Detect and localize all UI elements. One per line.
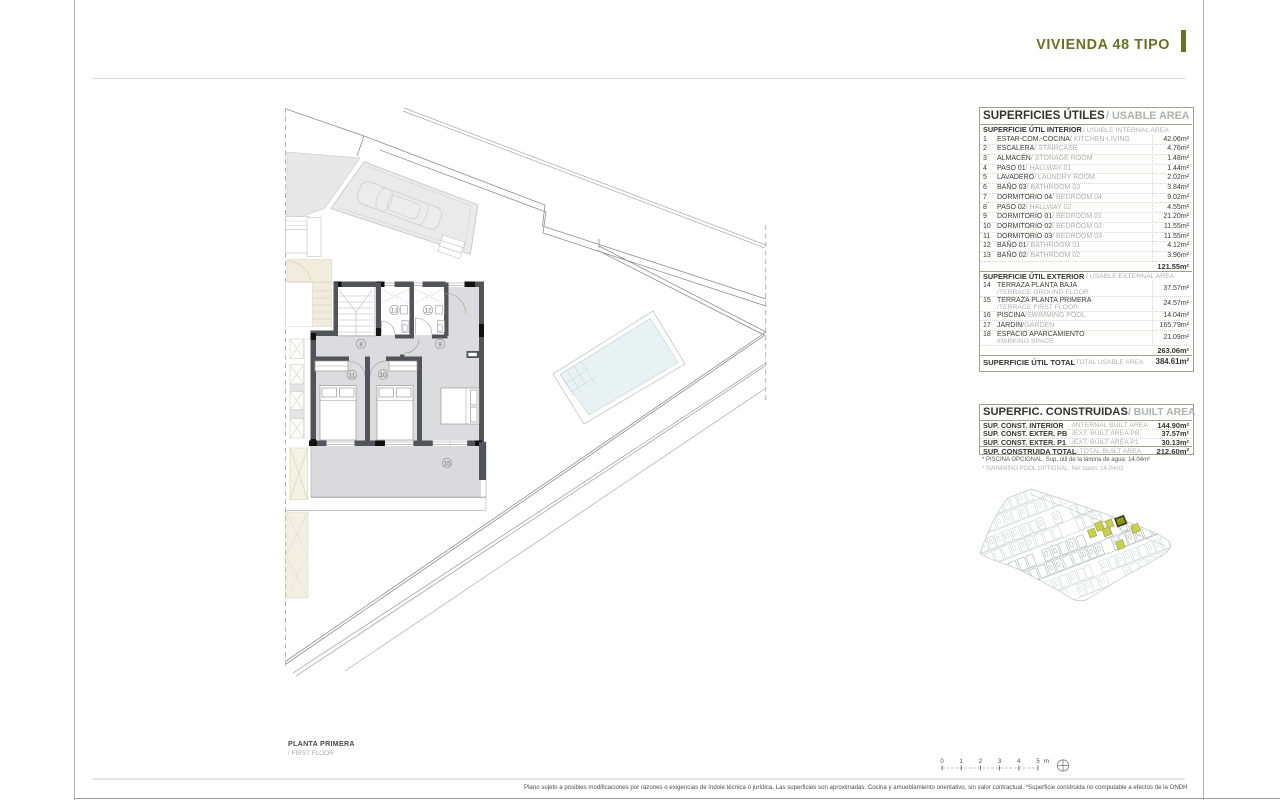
svg-text:2: 2 [979, 759, 983, 765]
svg-text:13: 13 [391, 307, 399, 314]
svg-text:m: m [1044, 759, 1049, 765]
svg-text:3: 3 [998, 759, 1002, 765]
svg-text:1: 1 [960, 759, 964, 765]
svg-text:4: 4 [1017, 759, 1021, 765]
svg-text:11: 11 [349, 372, 356, 379]
svg-text:9: 9 [438, 341, 442, 348]
svg-text:15: 15 [443, 460, 451, 467]
svg-text:5: 5 [1036, 759, 1040, 765]
svg-text:0: 0 [940, 759, 944, 765]
svg-text:8: 8 [359, 341, 363, 348]
svg-text:12: 12 [424, 307, 432, 314]
svg-text:10: 10 [379, 372, 387, 379]
